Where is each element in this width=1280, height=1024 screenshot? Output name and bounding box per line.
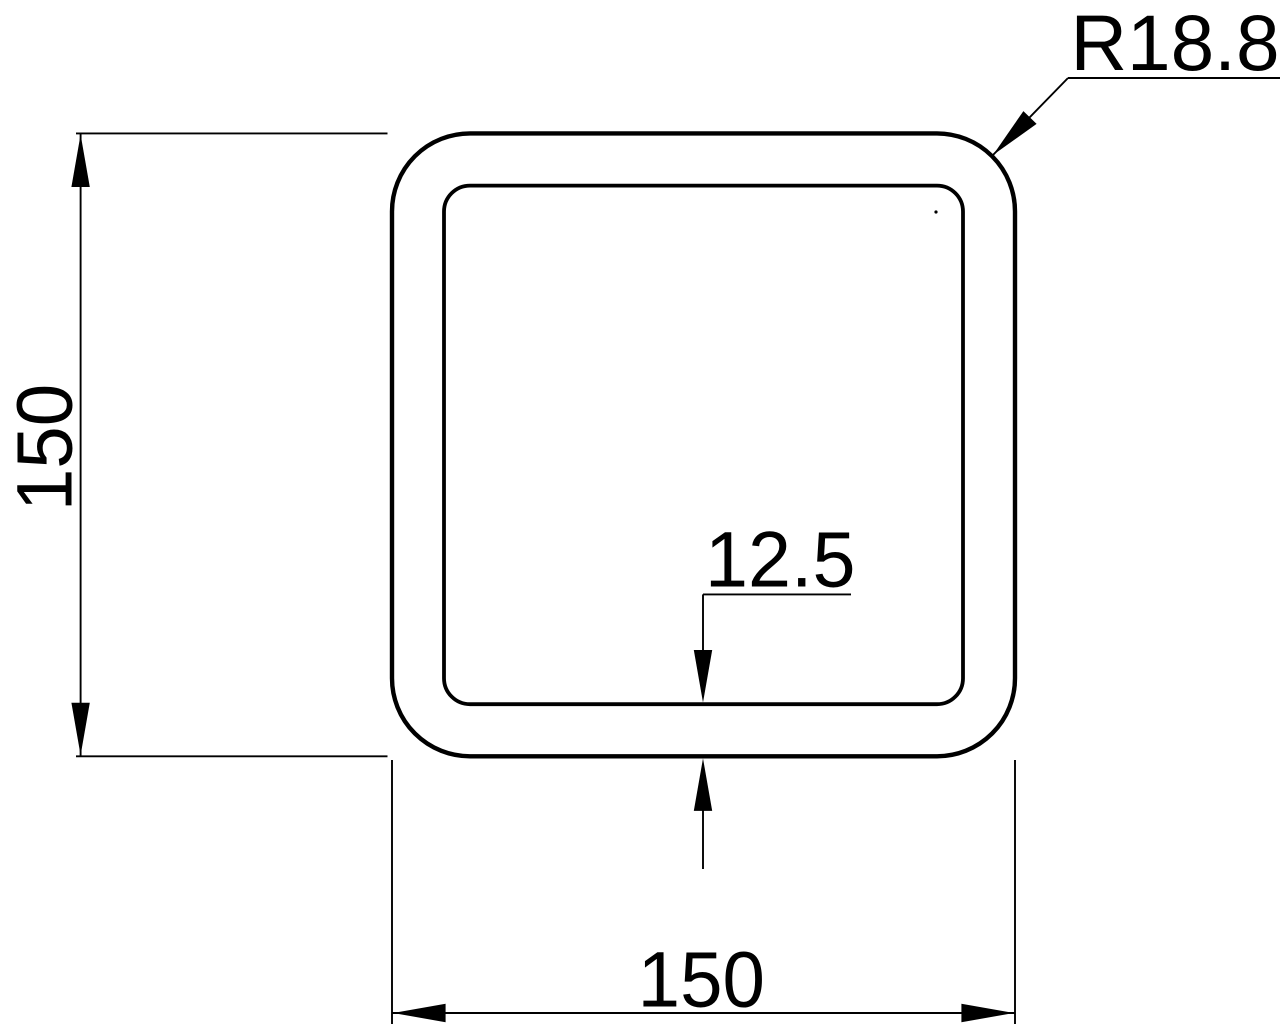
svg-text:150: 150 xyxy=(1,384,89,511)
svg-text:12.5: 12.5 xyxy=(705,515,855,604)
svg-text:R18.8: R18.8 xyxy=(1070,0,1279,87)
svg-text:150: 150 xyxy=(638,936,765,1024)
